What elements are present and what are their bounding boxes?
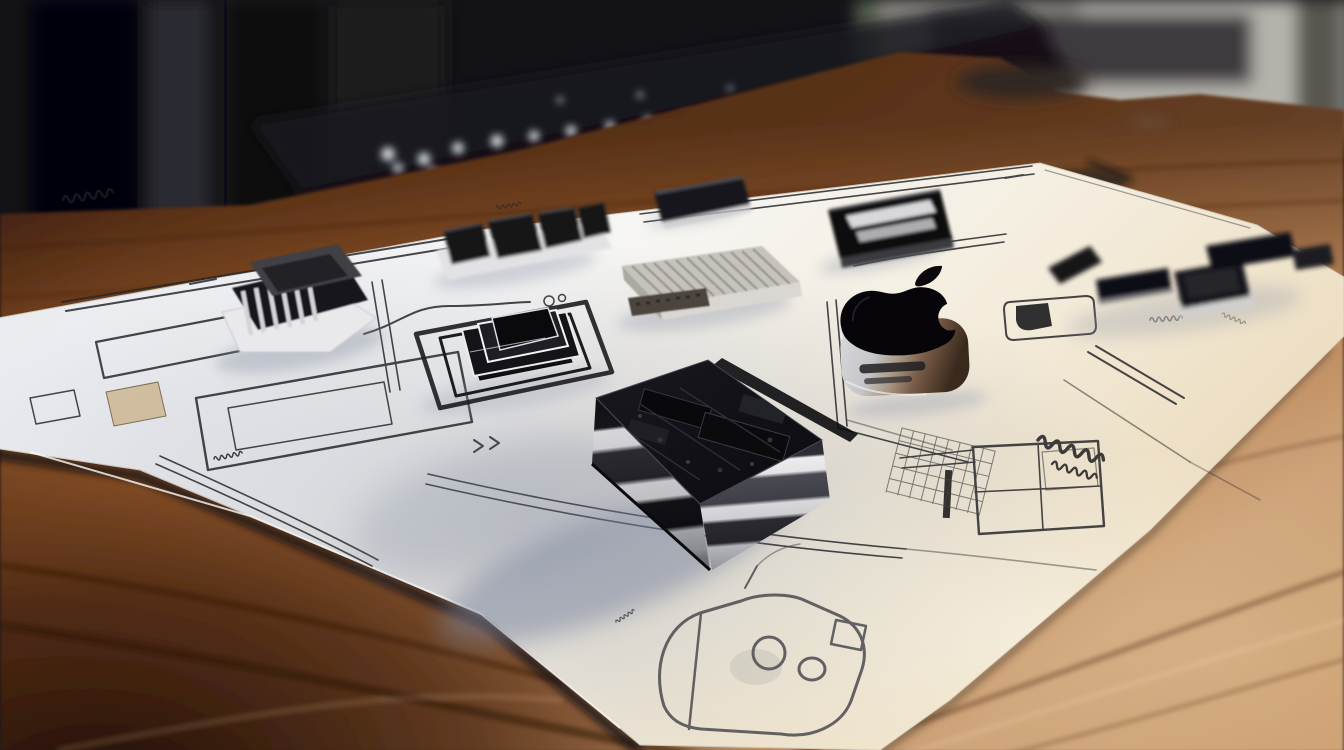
- filled-symbol: [1016, 303, 1052, 330]
- photo-scene: [0, 0, 1344, 750]
- scene-canvas: [0, 0, 1344, 750]
